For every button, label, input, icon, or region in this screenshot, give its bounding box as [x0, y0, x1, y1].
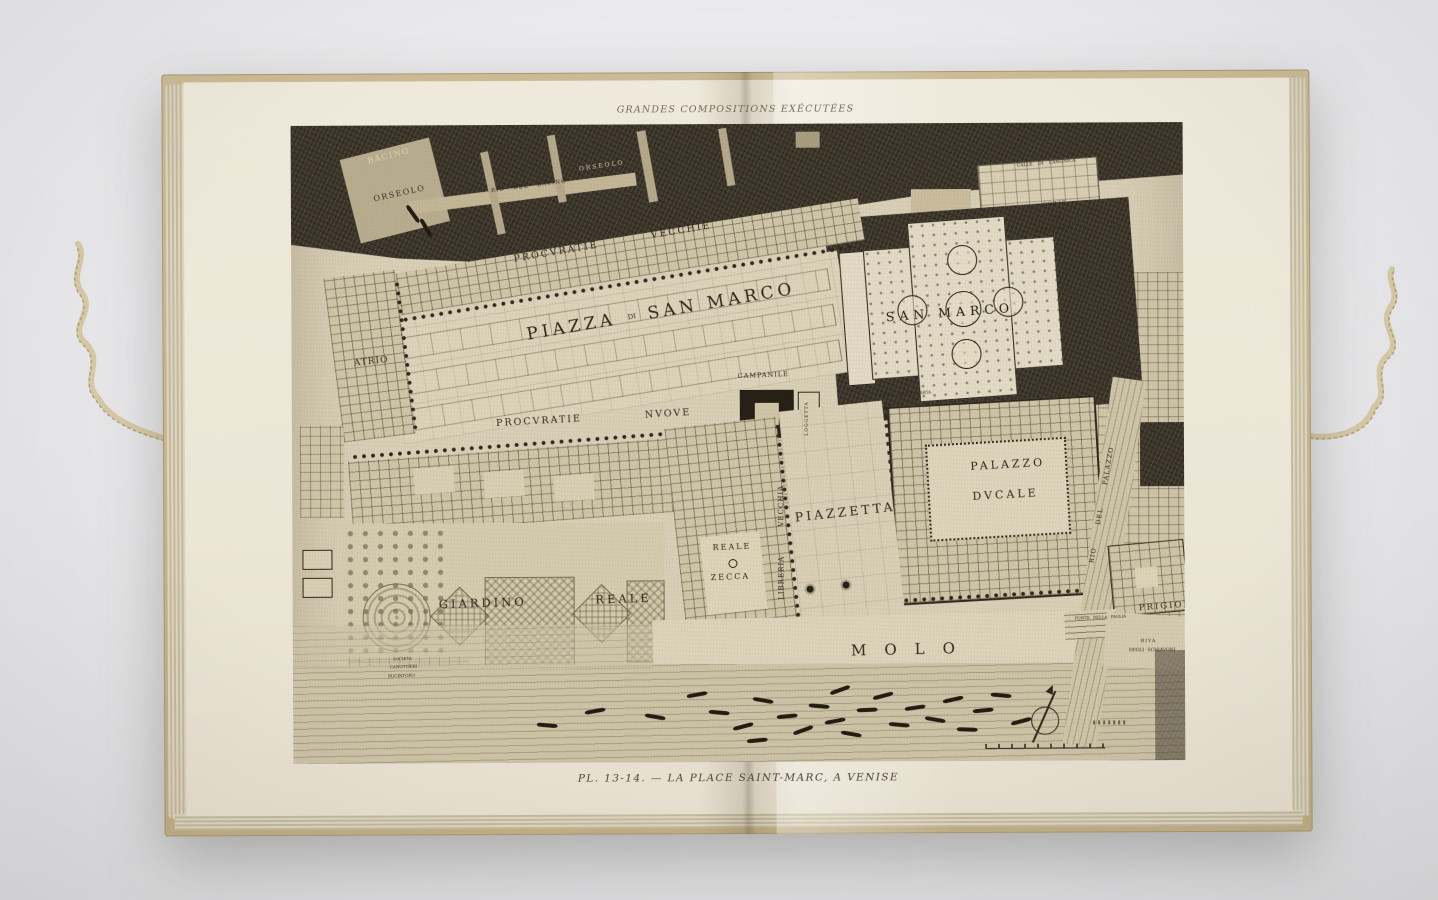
gondola: [990, 692, 1011, 698]
label-di: DI: [627, 313, 636, 321]
gondola: [841, 730, 862, 737]
gondola: [889, 722, 910, 728]
gondola: [957, 727, 978, 732]
plate-map-piazza-san-marco: BACINO ORSEOLO RIO DEL BACINO ORSEOLO PR…: [291, 122, 1186, 764]
gondola: [686, 691, 707, 699]
label-campanile: CAMPANILE: [738, 371, 789, 380]
gondola: [793, 725, 814, 736]
gondola: [857, 708, 878, 713]
gondola: [419, 218, 433, 238]
label-libreria-vecchia: LIBRERIA VECCHIA: [778, 485, 786, 600]
gondola: [808, 703, 829, 709]
label-societa: SOCIETA: [393, 657, 412, 662]
gondolas-layer: [291, 122, 1186, 764]
gondola: [872, 691, 893, 700]
gondola: [405, 204, 420, 223]
book: GRANDES COMPOSITIONS EXÉCUTÉES: [161, 69, 1312, 836]
gondola: [1011, 717, 1032, 726]
label-loggetta: LOGGETTA: [806, 401, 811, 435]
label-degli-schiavoni: DEGLI SCHIAVONI: [1129, 649, 1176, 654]
gondola: [924, 716, 945, 723]
gondola: [747, 737, 768, 743]
gondola: [942, 695, 963, 703]
gondola: [537, 722, 558, 728]
gondola: [777, 713, 798, 719]
gondola: [904, 704, 925, 711]
gondola: [829, 685, 850, 696]
gondola: [644, 713, 665, 720]
label-zecca: ZECCA: [711, 573, 751, 583]
gondola: [584, 707, 605, 715]
label-molo: MOLO: [851, 641, 973, 659]
gondola: [972, 707, 993, 713]
label-ducale: DVCALE: [972, 487, 1039, 502]
gondola: [709, 710, 730, 716]
label-reale: REALE: [712, 543, 751, 553]
zecca-mark: [728, 559, 737, 568]
gondola: [824, 717, 845, 725]
gondola: [752, 697, 773, 704]
label-riva: RIVA: [1141, 640, 1156, 645]
label-di-canonica: DI: [1055, 215, 1061, 220]
photo-backdrop: GRANDES COMPOSITIONS EXÉCUTÉES: [0, 0, 1438, 900]
gondola: [733, 722, 754, 731]
